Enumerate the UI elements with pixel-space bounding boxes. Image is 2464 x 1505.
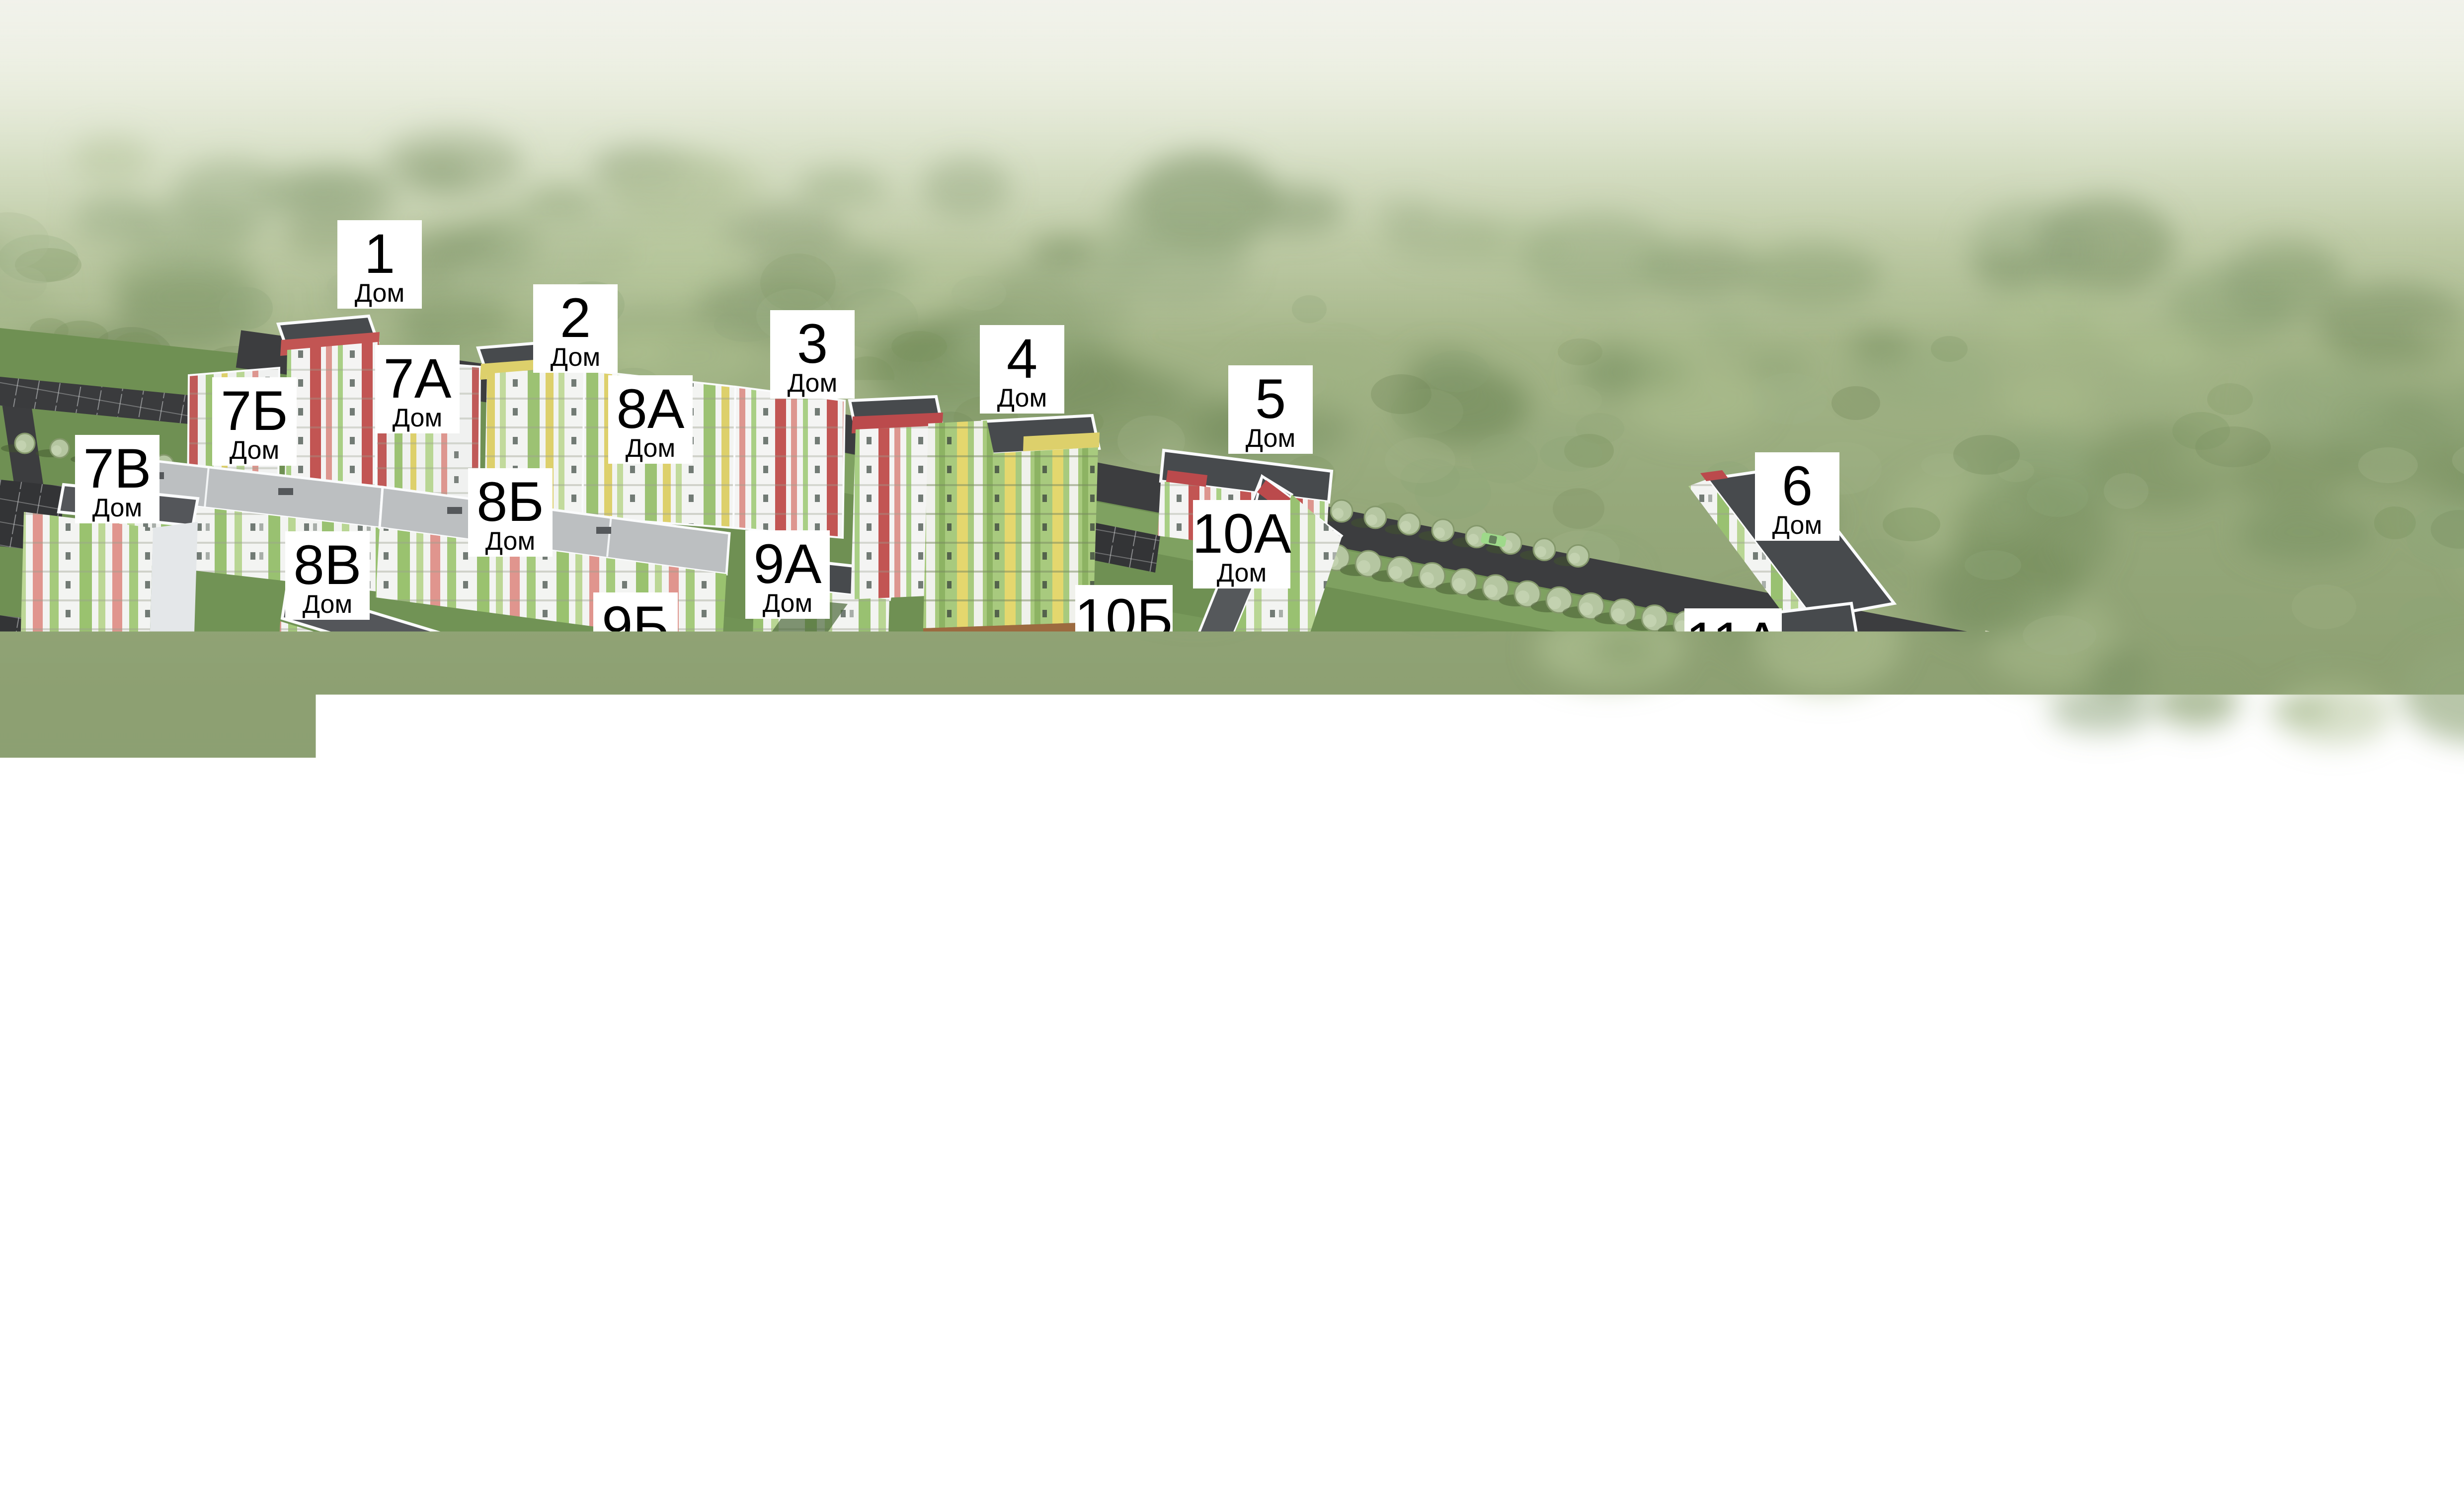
svg-text:Дом: Дом	[626, 434, 675, 463]
svg-text:Дом: Дом	[355, 279, 404, 308]
svg-text:5: 5	[1255, 368, 1286, 430]
svg-text:Дом: Дом	[2215, 891, 2264, 920]
svg-text:8В: 8В	[294, 534, 362, 596]
svg-text:Дом: Дом	[1708, 667, 1758, 696]
svg-text:11В: 11В	[1489, 798, 1584, 860]
svg-text:7А: 7А	[384, 347, 452, 410]
svg-text:Дом: Дом	[1099, 644, 1149, 672]
svg-text:Дом: Дом	[393, 404, 442, 432]
svg-text:12Б: 12Б	[2190, 835, 2289, 897]
svg-text:Дом: Дом	[763, 589, 812, 618]
svg-text:11Б: 11Б	[1526, 650, 1621, 712]
svg-text:Дом: Дом	[230, 436, 279, 465]
svg-text:Дом: Дом	[2232, 770, 2282, 799]
svg-text:12А: 12А	[2208, 714, 2307, 776]
svg-text:3: 3	[797, 313, 828, 375]
svg-text:Дом: Дом	[92, 494, 142, 522]
svg-text:Дом: Дом	[485, 527, 535, 556]
svg-text:12В: 12В	[2152, 966, 2251, 1028]
svg-text:Дом: Дом	[997, 384, 1047, 413]
svg-text:Дом: Дом	[1246, 424, 1295, 453]
svg-text:1: 1	[364, 223, 395, 285]
svg-text:7Б: 7Б	[221, 380, 288, 442]
svg-text:10В: 10В	[939, 693, 1038, 755]
svg-text:Дом: Дом	[1217, 559, 1267, 587]
svg-text:10Б: 10Б	[1075, 587, 1173, 650]
svg-text:Дом: Дом	[303, 590, 352, 619]
svg-text:Дом: Дом	[1511, 854, 1561, 883]
svg-text:4: 4	[1007, 328, 1037, 390]
svg-text:Дом: Дом	[2177, 1022, 2226, 1051]
svg-text:9А: 9А	[754, 533, 822, 595]
svg-text:Дом: Дом	[1772, 511, 1822, 540]
svg-text:Дом: Дом	[1549, 706, 1598, 735]
svg-text:10А: 10А	[1192, 502, 1291, 565]
svg-text:8А: 8А	[617, 378, 685, 440]
svg-text:6: 6	[1782, 455, 1813, 517]
svg-text:Дом: Дом	[551, 343, 600, 372]
svg-text:9Б: 9Б	[602, 595, 669, 657]
svg-text:11А: 11А	[1686, 611, 1781, 673]
svg-text:7В: 7В	[83, 437, 152, 500]
svg-text:Дом: Дом	[964, 749, 1014, 778]
svg-text:Дом: Дом	[611, 651, 660, 680]
svg-text:8Б: 8Б	[477, 471, 544, 533]
svg-text:Перспектива с птичего полета: Перспектива с птичего полета	[178, 1398, 778, 1444]
svg-text:Дом: Дом	[788, 369, 837, 398]
svg-text:2: 2	[560, 287, 591, 349]
